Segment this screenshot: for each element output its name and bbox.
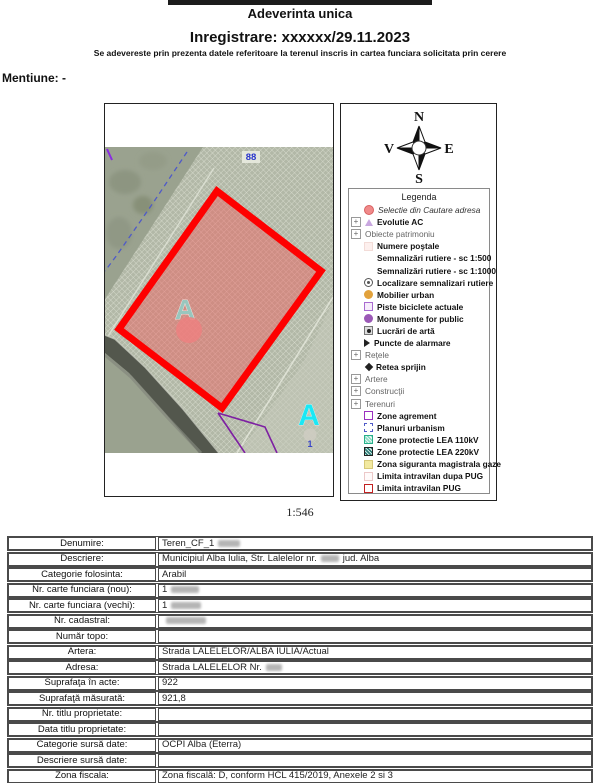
legend-label: Localizare semnalizari rutiere [377, 278, 493, 288]
row-label: Descriere: [8, 553, 156, 566]
row-label: Nr. carte funciara (nou): [8, 584, 156, 597]
legend-item: Zone agrement [349, 410, 489, 422]
pink-square-icon [364, 242, 373, 251]
legend-item: Piste biciclete actuale [349, 301, 489, 313]
black-diamond-icon [365, 363, 373, 371]
legend-label: Lucrări de artă [377, 326, 435, 336]
table-row: Nr. titlu proprietate: [7, 707, 593, 722]
point-number-label: 1 [307, 439, 312, 449]
table-row: Număr topo: [7, 629, 593, 644]
legend-item: Semnalizări rutiere - sc 1:1000 [349, 264, 489, 276]
legend-item: Retea sprijin [349, 361, 489, 373]
red-border-square-icon [364, 484, 373, 493]
certification-subtitle: Se adevereste prin prezenta datele refer… [0, 48, 600, 58]
row-label: Adresa: [8, 661, 156, 674]
legend-label: Semnalizări rutiere - sc 1:500 [377, 253, 491, 263]
legend-label: Retea sprijin [376, 362, 426, 372]
table-row: Suprafaţă măsurată:921,8 [7, 691, 593, 706]
row-value: 1 [158, 599, 592, 612]
expand-plus-icon: + [351, 386, 361, 396]
purple-dot-icon [364, 314, 373, 323]
row-label: Număr topo: [8, 630, 156, 643]
purple-border-square-icon [364, 302, 373, 311]
row-label: Nr. titlu proprietate: [8, 708, 156, 721]
table-row: Nr. carte funciara (vechi):1 [7, 598, 593, 613]
row-label: Nr. cadastral: [8, 615, 156, 628]
dashed-blue-square-icon [364, 423, 373, 432]
table-row: Descriere sursă date: [7, 753, 593, 768]
row-value: Strada LALELELOR Nr. [158, 661, 592, 674]
row-value [158, 723, 592, 736]
red-circle-icon [364, 205, 374, 215]
row-label: Suprafaţă măsurată: [8, 692, 156, 705]
redaction-bar [168, 0, 432, 5]
legend-title: Legenda [349, 192, 489, 202]
legend-label: Construcţii [365, 386, 404, 396]
table-row: Nr. cadastral: [7, 614, 593, 629]
redacted-text [266, 664, 282, 671]
redacted-text [171, 602, 201, 609]
row-label: Suprafaţa în acte: [8, 677, 156, 690]
row-label: Artera: [8, 646, 156, 659]
legend-label: Numere poştale [377, 241, 439, 251]
compass-north-label: N [414, 110, 424, 125]
expand-plus-icon: + [351, 399, 361, 409]
expand-plus-icon: + [351, 350, 361, 360]
legend-label: Selectie din Cautare adresa [378, 205, 480, 215]
legend-label: Zone protectie LEA 220kV [377, 447, 479, 457]
legend-label: Limita intravilan PUG [377, 483, 461, 493]
legend-item: +Reţele [349, 349, 489, 361]
legend-item: Selectie din Cautare adresa [349, 204, 489, 216]
legend-item: Lucrări de artă [349, 325, 489, 337]
compass-south-label: S [415, 172, 423, 186]
row-value [158, 708, 592, 721]
table-row: Descriere:Municipiul Alba Iulia, Str. La… [7, 552, 593, 567]
legend-item: Limita intravilan PUG [349, 482, 489, 494]
row-label: Categorie sursă date: [8, 739, 156, 752]
zone-letter-a-right: A [298, 399, 320, 432]
legend-item: +Obiecte patrimoniu [349, 228, 489, 240]
map-scale: 1:546 [0, 505, 600, 520]
expand-plus-icon: + [351, 229, 361, 239]
legend-label: Piste biciclete actuale [377, 302, 463, 312]
legend-label: Obiecte patrimoniu [365, 229, 435, 239]
table-row: Categorie sursă date:OCPI Alba (Eterra) [7, 738, 593, 753]
table-row: Categorie folosinta:Arabil [7, 567, 593, 582]
table-row: Denumire:Teren_CF_1 [7, 536, 593, 551]
row-value: Strada LALELELOR/ALBA IULIA/Actual [158, 646, 592, 659]
legend-item: +Terenuri [349, 398, 489, 410]
redacted-text [166, 617, 206, 624]
legend-item: Planuri urbanism [349, 422, 489, 434]
document-page: Adeverinta unica Inregistrare: xxxxxx/29… [0, 0, 600, 783]
row-label: Categorie folosinta: [8, 568, 156, 581]
legend-label: Limita intravilan dupa PUG [377, 471, 483, 481]
row-value: Teren_CF_1 [158, 537, 592, 550]
legend-item: Limita intravilan dupa PUG [349, 470, 489, 482]
legend-label: Artere [365, 374, 388, 384]
redacted-text [171, 586, 199, 593]
legend-item: Semnalizări rutiere - sc 1:500 [349, 252, 489, 264]
table-row: Artera:Strada LALELELOR/ALBA IULIA/Actua… [7, 645, 593, 660]
legend-label: Planuri urbanism [377, 423, 445, 433]
expand-plus-icon: + [351, 374, 361, 384]
teal-hatch-icon [364, 435, 373, 444]
black-triangle-right-icon [364, 339, 370, 347]
row-value: 922 [158, 677, 592, 690]
legend-label: Semnalizări rutiere - sc 1:1000 [377, 266, 496, 276]
legend-item: Zone protectie LEA 110kV [349, 434, 489, 446]
legend-label: Reţele [365, 350, 389, 360]
purple-triangle-icon [365, 219, 373, 226]
legend-item: Numere poştale [349, 240, 489, 252]
art-icon-icon [364, 326, 373, 335]
dark-hatch-icon [364, 447, 373, 456]
legend-label: Terenuri [365, 399, 395, 409]
legend-label: Zone protectie LEA 110kV [377, 435, 479, 445]
redacted-text [321, 555, 339, 562]
legend-item: Mobilier urban [349, 289, 489, 301]
row-value [158, 615, 592, 628]
parcel-data-table: Denumire:Teren_CF_1Descriere:Municipiul … [7, 536, 593, 783]
compass-star [397, 126, 441, 170]
address-marker [176, 317, 202, 343]
row-value: Zona fiscală: D, conform HCL 415/2019, A… [158, 770, 592, 783]
compass-west-label: V [384, 142, 394, 157]
mention-line: Mentiune: - [2, 71, 66, 85]
row-value [158, 754, 592, 767]
legend-label: Evolutie AC [377, 217, 423, 227]
compass-east-label: E [444, 142, 453, 157]
legend-label: Zona siguranta magistrala gaze [377, 459, 501, 469]
row-label: Nr. carte funciara (vechi): [8, 599, 156, 612]
purple-square-icon [364, 411, 373, 420]
row-label: Descriere sursă date: [8, 754, 156, 767]
row-label: Denumire: [8, 537, 156, 550]
table-row: Nr. carte funciara (nou):1 [7, 583, 593, 598]
row-label: Data titlu proprietate: [8, 723, 156, 736]
table-row: Data titlu proprietate: [7, 722, 593, 737]
legend-panel: Legenda Selectie din Cautare adresa+Evol… [348, 188, 490, 494]
page-title: Adeverinta unica [0, 6, 600, 21]
registration-line: Inregistrare: xxxxxx/29.11.2023 [0, 29, 600, 46]
row-value: Arabil [158, 568, 592, 581]
row-value [158, 630, 592, 643]
expand-plus-icon: + [351, 217, 361, 227]
legend-items: Selectie din Cautare adresa+Evolutie AC+… [349, 204, 489, 494]
row-value: 921,8 [158, 692, 592, 705]
yellow-square-icon [364, 460, 373, 469]
legend-label: Monumente for public [377, 314, 464, 324]
table-row: Zona fiscala:Zona fiscală: D, conform HC… [7, 769, 593, 783]
map-panel: 88 A A 1 [104, 103, 334, 497]
orange-dot-icon [364, 290, 373, 299]
legend-item: Zone protectie LEA 220kV [349, 446, 489, 458]
table-row: Adresa:Strada LALELELOR Nr. [7, 660, 593, 675]
circle-dot-icon [364, 278, 373, 287]
legend-item: +Evolutie AC [349, 216, 489, 228]
legend-label: Zone agrement [377, 411, 436, 421]
pink-border-square-icon [364, 472, 373, 481]
aerial-map: 88 A A 1 [105, 147, 333, 453]
legend-item: +Artere [349, 373, 489, 385]
legend-panel-box: N S E V Legenda Selectie din Cautare adr… [340, 103, 497, 501]
parcel-number-label: 88 [246, 152, 257, 163]
compass-rose: N S E V [379, 106, 459, 186]
row-label: Zona fiscala: [8, 770, 156, 783]
row-value: OCPI Alba (Eterra) [158, 739, 592, 752]
legend-label: Mobilier urban [377, 290, 434, 300]
table-row: Suprafaţa în acte:922 [7, 676, 593, 691]
legend-item: +Construcţii [349, 385, 489, 397]
legend-item: Monumente for public [349, 313, 489, 325]
row-value: 1 [158, 584, 592, 597]
legend-label: Puncte de alarmare [374, 338, 451, 348]
redacted-text [218, 540, 240, 547]
legend-item: Zona siguranta magistrala gaze [349, 458, 489, 470]
legend-item: Localizare semnalizari rutiere [349, 277, 489, 289]
row-value: Municipiul Alba Iulia, Str. Lalelelor nr… [158, 553, 592, 566]
legend-item: Puncte de alarmare [349, 337, 489, 349]
